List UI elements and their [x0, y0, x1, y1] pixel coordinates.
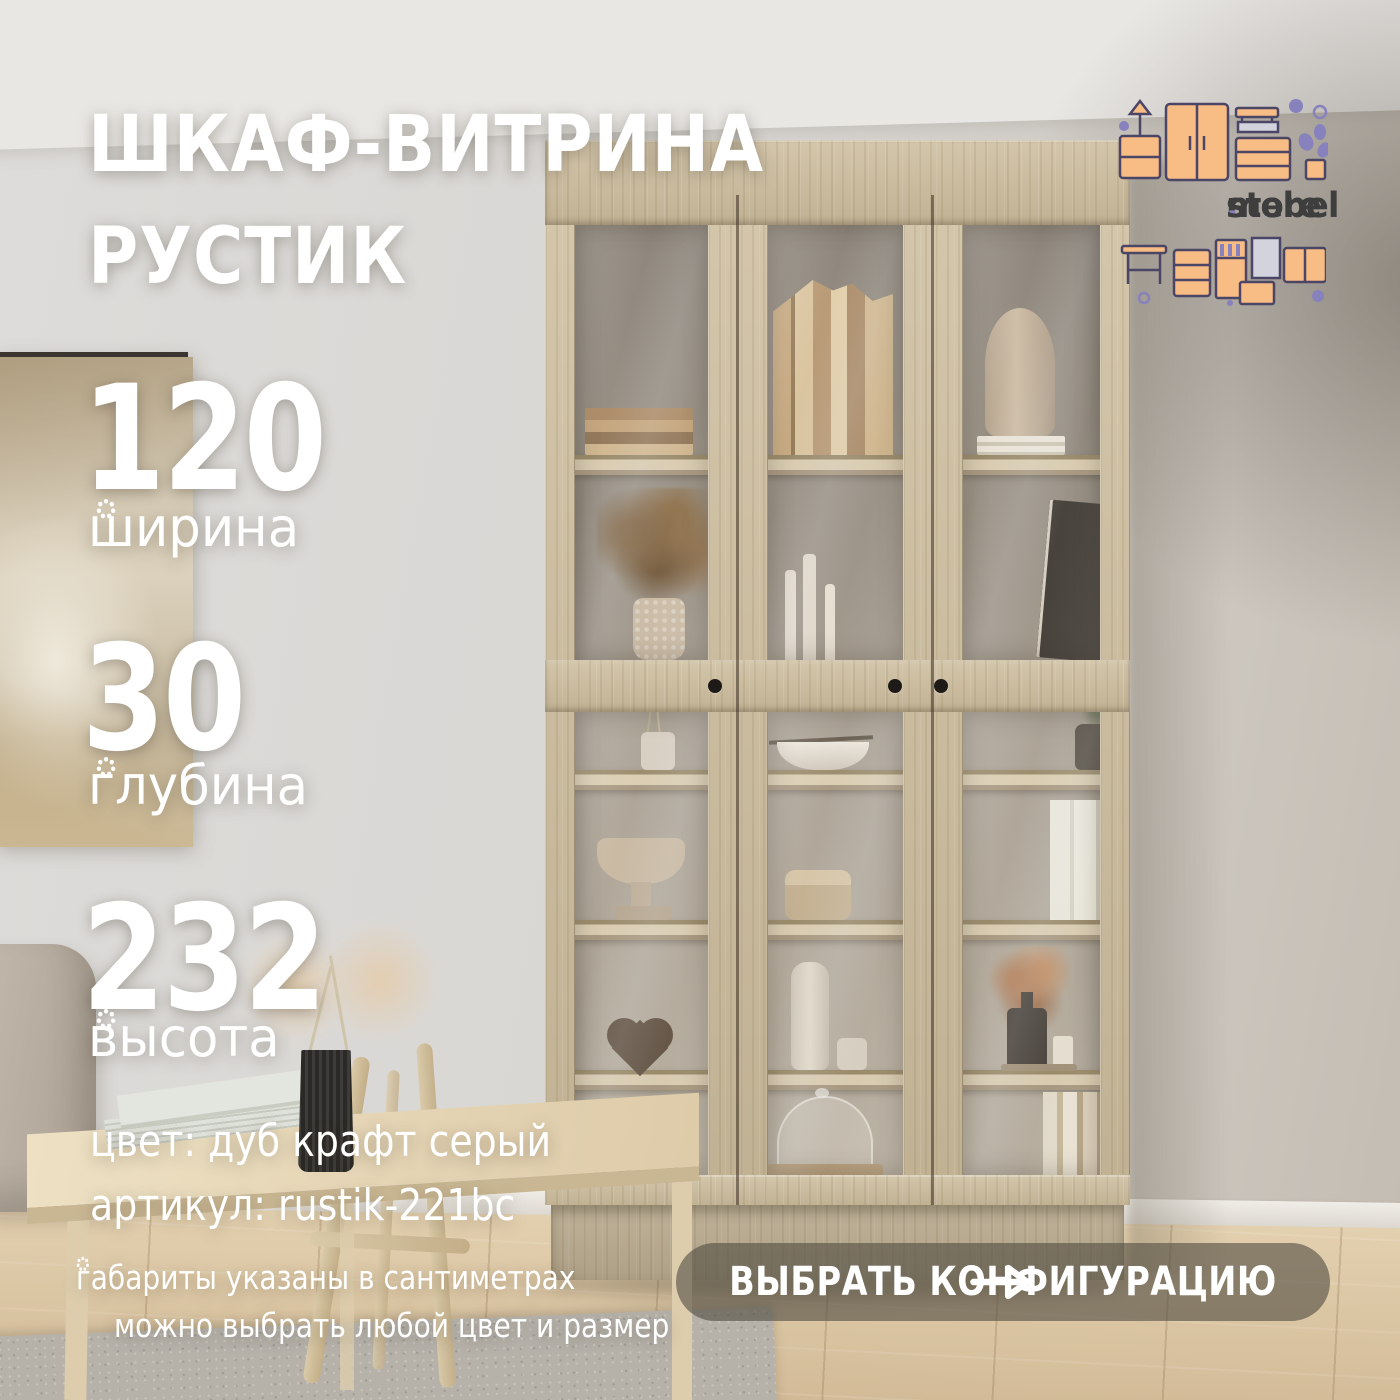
door-knob — [934, 679, 948, 693]
bed-icon — [1238, 122, 1278, 132]
cabinet-mid-rail — [545, 660, 1130, 712]
dimension-height-label: высота — [88, 1006, 280, 1069]
glass-pane — [963, 225, 1100, 660]
glass-pane — [575, 225, 708, 660]
books-icon — [1220, 244, 1240, 256]
shelf-icon — [1236, 108, 1278, 117]
glass-pane — [768, 225, 903, 660]
ad-banner: mebel.store ШКА — [0, 0, 1400, 1400]
footnote-line2: можно выбрать любой цвет и размер — [114, 1306, 669, 1345]
color-line: цвет: дуб крафт серый — [90, 1116, 551, 1167]
brand-logo-icons-top — [1118, 98, 1328, 182]
asterisk-icon — [96, 498, 117, 520]
dresser-icon — [1236, 138, 1290, 180]
cabinet-shadow — [1128, 160, 1228, 1280]
asterisk-icon — [76, 1256, 90, 1272]
asterisk-icon — [96, 1008, 117, 1030]
choose-configuration-button[interactable]: ВЫБРАТЬ КОНФИГУРАЦИЮ — [676, 1243, 1330, 1321]
glass-pane — [768, 712, 903, 1175]
sku-line: артикул: rustik-221bc — [90, 1180, 515, 1231]
door-seam — [736, 195, 739, 1205]
door-seam — [931, 195, 934, 1205]
plant-icon — [1296, 124, 1328, 160]
product-title-line1: ШКАФ-ВИТРИНА — [88, 100, 764, 190]
product-title-line2: РУСТИК — [88, 212, 407, 302]
pot-icon — [1306, 160, 1325, 179]
lamp-icon — [1130, 101, 1150, 114]
dresser-icon — [1174, 250, 1210, 296]
glass-pane — [963, 712, 1100, 1175]
asterisk-icon — [96, 756, 117, 778]
drawer-icon — [1240, 282, 1274, 304]
console-icon — [1122, 246, 1166, 253]
dimension-depth-value: 30 — [82, 626, 244, 772]
dimension-width-value: 120 — [82, 366, 325, 512]
brand-word-2: store — [1226, 186, 1321, 226]
door-knob — [708, 679, 722, 693]
fridge-icon — [1252, 238, 1280, 278]
arrow-right-icon — [970, 1262, 1036, 1302]
table-leg — [64, 1205, 89, 1400]
brand-logo-icons-bottom — [1120, 236, 1326, 306]
door-knob — [888, 679, 902, 693]
dimension-depth-label: глубина — [88, 754, 308, 817]
pampas-grass — [308, 907, 451, 1054]
footnote-line1: габариты указаны в сантиметрах — [76, 1258, 575, 1297]
dimension-width-label: ширина — [88, 496, 299, 559]
